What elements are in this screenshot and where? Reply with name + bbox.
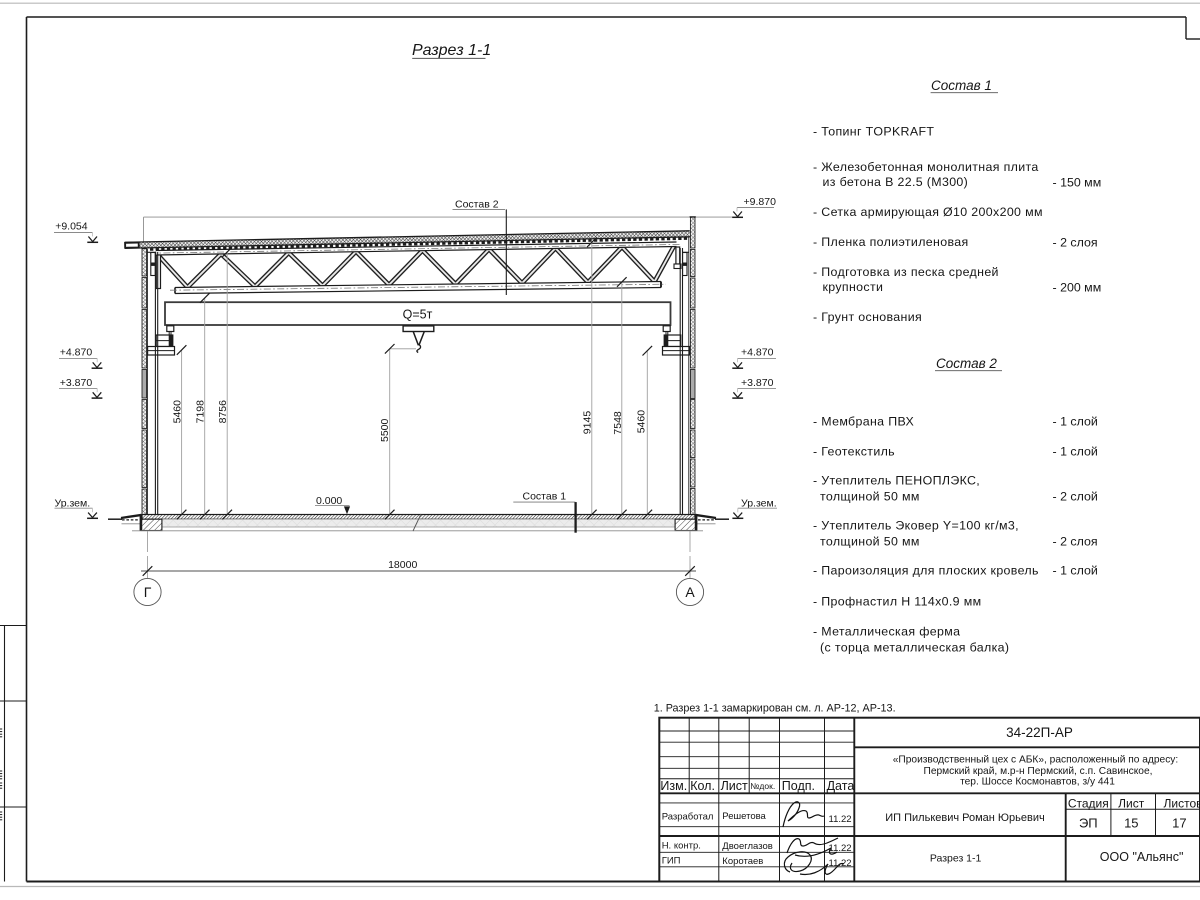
svg-text:8756: 8756	[217, 400, 229, 424]
svg-text:Лист: Лист	[1118, 796, 1145, 810]
svg-text:+4.870: +4.870	[60, 347, 93, 359]
svg-text:«Производственный цех с АБК»,: «Производственный цех с АБК», расположен…	[893, 755, 1178, 766]
svg-text:ГИП: ГИП	[662, 855, 681, 866]
svg-text:- 150 мм: - 150 мм	[1053, 176, 1102, 190]
svg-text:толщиной 50 мм: толщиной 50 мм	[820, 535, 920, 549]
svg-text:+4.870: +4.870	[741, 347, 774, 359]
svg-text:Подп.: Подп.	[782, 779, 815, 793]
svg-text:из бетона В 22.5 (М300): из бетона В 22.5 (М300)	[823, 175, 969, 189]
svg-text:15: 15	[1124, 816, 1138, 831]
svg-text:Двоеглазов: Двоеглазов	[722, 841, 773, 852]
svg-text:7198: 7198	[195, 400, 207, 424]
svg-text:+9.870: +9.870	[744, 196, 777, 208]
svg-text:ИП Пилькевич Роман Юрьевич: ИП Пилькевич Роман Юрьевич	[885, 812, 1044, 824]
svg-text:Разработал: Разработал	[662, 811, 714, 822]
svg-text:+3.870: +3.870	[60, 377, 93, 389]
svg-text:- Топинг TOPKRAFT: - Топинг TOPKRAFT	[813, 125, 934, 139]
svg-text:- Подготовка из песка средней: - Подготовка из песка средней	[813, 265, 999, 279]
svg-text:Ур.зем.: Ур.зем.	[55, 498, 91, 510]
svg-text:7548: 7548	[612, 411, 624, 435]
svg-text:Ур.зем.: Ур.зем.	[741, 498, 777, 510]
svg-text:- Железобетонная монолитная п: - Железобетонная монолитная плита	[813, 160, 1039, 174]
svg-text:тер. Шоссе Космонавтов, з/у 44: тер. Шоссе Космонавтов, з/у 441	[960, 777, 1115, 788]
svg-text:Листов: Листов	[1164, 796, 1200, 810]
svg-text:Разрез 1-1: Разрез 1-1	[412, 42, 491, 59]
svg-text:Кол.: Кол.	[690, 779, 715, 793]
svg-text:+3.870: +3.870	[741, 377, 774, 389]
svg-text:ООО "Альянс": ООО "Альянс"	[1100, 850, 1184, 864]
svg-text:№док.: №док.	[750, 781, 775, 791]
svg-text:- 1 слой: - 1 слой	[1053, 445, 1098, 459]
svg-text:11.22: 11.22	[829, 814, 852, 825]
svg-text:- Мембрана ПВХ: - Мембрана ПВХ	[813, 415, 914, 429]
svg-text:толщиной 50 мм: толщиной 50 мм	[820, 490, 920, 504]
svg-text:Состав 1: Состав 1	[931, 78, 992, 93]
svg-text:- 2 слой: - 2 слой	[1053, 490, 1098, 504]
svg-text:- Пленка полиэтиленовая: - Пленка полиэтиленовая	[813, 235, 969, 249]
svg-text:Г: Г	[144, 584, 152, 600]
svg-text:+9.054: +9.054	[55, 221, 88, 233]
svg-text:Пермский край, м.р-н Пермский,: Пермский край, м.р-н Пермский, с.п. Сави…	[924, 766, 1153, 777]
svg-text:Лист: Лист	[721, 779, 748, 793]
svg-text:5500: 5500	[379, 418, 391, 442]
svg-text:- Металлическая ферма: - Металлическая ферма	[813, 625, 960, 639]
svg-text:Состав 1: Состав 1	[523, 491, 567, 503]
svg-text:Q=5т: Q=5т	[403, 308, 433, 322]
svg-text:Состав 2: Состав 2	[455, 199, 499, 211]
svg-text:- Утеплитель ПЕНОПЛЭКС,: - Утеплитель ПЕНОПЛЭКС,	[813, 474, 980, 488]
svg-text:Разрез 1-1: Разрез 1-1	[930, 852, 982, 864]
svg-text:17: 17	[1172, 816, 1186, 831]
svg-text:- Сетка армирующая Ø10 200х200: - Сетка армирующая Ø10 200х200 мм	[813, 205, 1043, 219]
svg-text:Дата: Дата	[827, 779, 855, 793]
svg-text:5460: 5460	[635, 410, 647, 434]
svg-text:А: А	[685, 584, 695, 600]
svg-text:крупности: крупности	[823, 280, 884, 294]
svg-text:- Пароизоляция для плоских кро: - Пароизоляция для плоских кровель	[813, 564, 1039, 578]
svg-text:Н. контр.: Н. контр.	[662, 841, 701, 852]
svg-text:34-22П-АР: 34-22П-АР	[1006, 725, 1073, 740]
svg-text:Коротаев: Коротаев	[722, 856, 763, 867]
svg-text:Изм.: Изм.	[660, 779, 687, 793]
svg-text:- 200 мм: - 200 мм	[1053, 281, 1102, 295]
svg-text:- Профнастил Н 114х0.9 мм: - Профнастил Н 114х0.9 мм	[813, 595, 981, 609]
svg-text:- 1 слой: - 1 слой	[1053, 415, 1098, 429]
svg-text:18000: 18000	[388, 559, 417, 571]
svg-text:- 1 слой: - 1 слой	[1053, 564, 1098, 578]
svg-text:5460: 5460	[171, 400, 183, 424]
svg-text:- Утеплитель Эковер Y=100 кг/м: - Утеплитель Эковер Y=100 кг/м3,	[813, 519, 1019, 533]
svg-text:- 2 слоя: - 2 слоя	[1053, 535, 1098, 549]
svg-text:1. Разрез 1-1 замаркирован см.: 1. Разрез 1-1 замаркирован см. л. АР-12,…	[654, 703, 896, 715]
svg-text:11.22: 11.22	[829, 843, 852, 854]
svg-text:Состав 2: Состав 2	[936, 356, 997, 371]
svg-text:- Грунт основания: - Грунт основания	[813, 310, 922, 324]
svg-text:9145: 9145	[582, 411, 594, 435]
svg-text:Стадия: Стадия	[1068, 796, 1109, 810]
svg-text:- Геотекстиль: - Геотекстиль	[813, 445, 895, 459]
svg-text:(с торца металлическая балка): (с торца металлическая балка)	[820, 641, 1009, 655]
svg-text:Решетова: Решетова	[722, 811, 766, 822]
svg-text:ЭП: ЭП	[1079, 816, 1098, 831]
svg-text:- 2 слоя: - 2 слоя	[1053, 236, 1098, 250]
